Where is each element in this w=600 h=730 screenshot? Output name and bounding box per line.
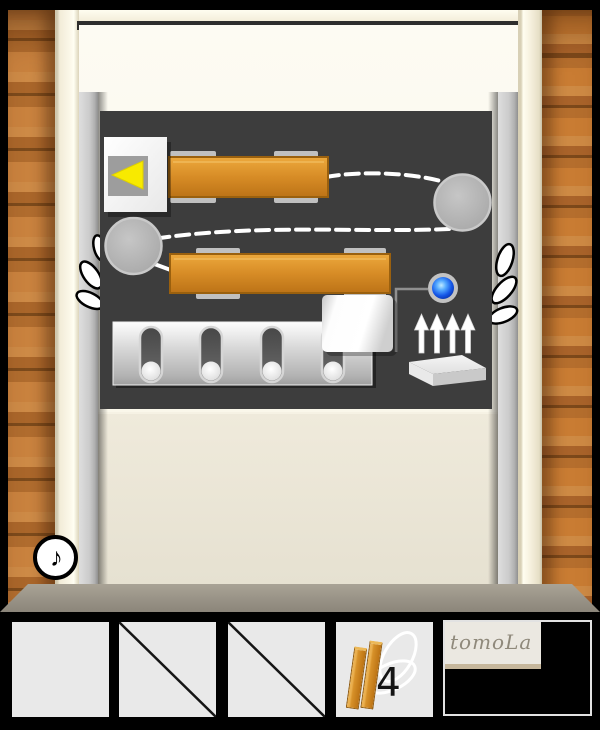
- logo-underline: [445, 664, 541, 669]
- logo-text: tomoLa: [450, 630, 532, 654]
- inventory-slot-1[interactable]: [12, 622, 109, 717]
- inventory-slot-2[interactable]: [119, 622, 216, 717]
- inventory-slot-4[interactable]: 4: [336, 622, 433, 717]
- logo-card: tomoLa: [445, 622, 541, 669]
- arrow-button[interactable]: [104, 137, 171, 217]
- sound-toggle-button[interactable]: ♪: [33, 535, 78, 580]
- music-note-icon: ♪: [50, 544, 63, 570]
- inventory-slot-3[interactable]: [228, 622, 325, 717]
- paper-box[interactable]: [322, 295, 397, 356]
- pulley-right: [435, 175, 491, 231]
- blue-button[interactable]: [428, 273, 458, 303]
- slider-bar-top[interactable]: [169, 157, 328, 197]
- pulley-left: [106, 218, 162, 274]
- slider-bar-bottom[interactable]: [170, 254, 390, 293]
- item-count: 4: [376, 664, 401, 703]
- game-screen: ♪ 4 tomoLa: [0, 0, 600, 730]
- crossed-out-icon: [228, 622, 325, 717]
- crossed-out-icon: [119, 622, 216, 717]
- brand-logo: tomoLa: [443, 620, 592, 716]
